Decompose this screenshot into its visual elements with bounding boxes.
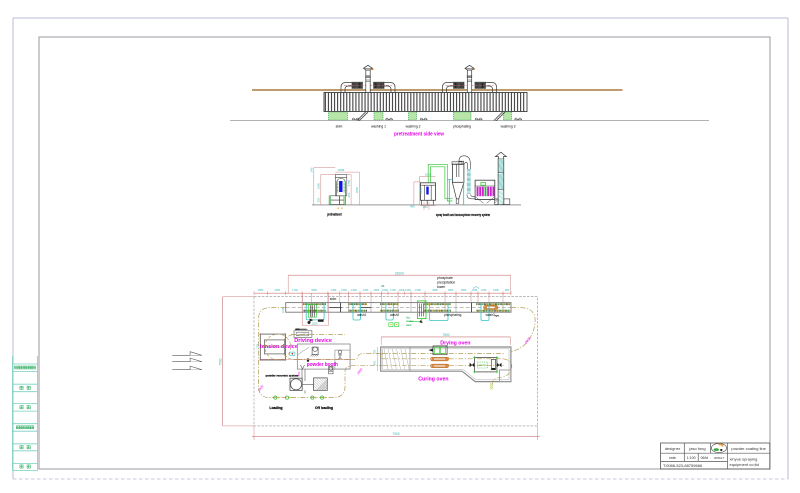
svg-text:005617: 005617 xyxy=(714,456,724,460)
svg-text:1000: 1000 xyxy=(415,288,421,292)
svg-text:washing 3: washing 3 xyxy=(501,125,516,129)
svg-text:1000: 1000 xyxy=(399,288,405,292)
svg-text:7500: 7500 xyxy=(442,333,449,337)
svg-text:450: 450 xyxy=(410,205,415,209)
svg-text:rate: rate xyxy=(669,455,677,460)
svg-text:phosphate: phosphate xyxy=(437,276,453,280)
svg-text:powder booth: powder booth xyxy=(307,362,339,368)
svg-text:2350: 2350 xyxy=(317,182,321,189)
svg-text:Off loading: Off loading xyxy=(315,406,333,410)
svg-text:06/td: 06/td xyxy=(701,456,709,460)
svg-text:1750: 1750 xyxy=(347,179,351,186)
svg-text:1700: 1700 xyxy=(390,288,396,292)
svg-text:1450: 1450 xyxy=(331,288,337,292)
svg-text:tower: tower xyxy=(437,285,446,289)
svg-text:phosphating: phosphating xyxy=(453,125,471,129)
svg-text:1500: 1500 xyxy=(257,384,265,392)
svg-text:1750: 1750 xyxy=(481,288,487,292)
svg-text:jaso fong: jaso fong xyxy=(688,446,705,451)
svg-text:Drying oven: Drying oven xyxy=(440,341,471,347)
svg-text:AB: AB xyxy=(381,284,385,288)
svg-text:7000: 7000 xyxy=(392,432,399,436)
svg-text:precipitation: precipitation xyxy=(437,280,455,284)
svg-text:tension device: tension device xyxy=(260,344,298,350)
svg-text:Curing oven: Curing oven xyxy=(418,377,449,383)
svg-text:450: 450 xyxy=(373,360,377,365)
svg-text:tank: tank xyxy=(406,323,412,327)
svg-text:Loading: Loading xyxy=(269,406,282,410)
svg-text:1250: 1250 xyxy=(472,288,478,292)
svg-text:1200: 1200 xyxy=(312,322,318,326)
svg-text:1500: 1500 xyxy=(356,367,364,375)
svg-text:1500: 1500 xyxy=(448,288,454,292)
svg-text:wash2: wash2 xyxy=(390,313,399,317)
svg-text:1500: 1500 xyxy=(258,288,264,292)
svg-text:1443: 1443 xyxy=(363,288,369,292)
svg-text:phosphating: phosphating xyxy=(444,313,462,317)
svg-text:equipment co;ltd: equipment co;ltd xyxy=(730,462,759,467)
svg-text:washing 2: washing 2 xyxy=(406,125,421,129)
svg-text:washing 1: washing 1 xyxy=(371,125,386,129)
svg-text:T:0086-523-88759666: T:0086-523-88759666 xyxy=(663,463,703,468)
svg-text:wash3: wash3 xyxy=(486,313,495,317)
svg-text:spray booth and monocyclone re: spray booth and monocyclone recovery sys… xyxy=(436,213,490,217)
svg-text:pretreatment side view: pretreatment side view xyxy=(394,131,445,137)
svg-text:1000: 1000 xyxy=(373,288,379,292)
svg-text:powder coating line: powder coating line xyxy=(731,446,766,451)
svg-text:2200: 2200 xyxy=(493,288,499,292)
svg-text:350: 350 xyxy=(317,197,321,202)
svg-text:1700: 1700 xyxy=(292,288,298,292)
svg-text:240: 240 xyxy=(310,167,314,172)
svg-text:1000: 1000 xyxy=(351,288,357,292)
svg-text:26200: 26200 xyxy=(395,272,404,276)
svg-text:1000: 1000 xyxy=(405,288,411,292)
svg-text:600: 600 xyxy=(347,192,351,197)
svg-text:wash1: wash1 xyxy=(357,313,366,317)
svg-text:1:100: 1:100 xyxy=(687,456,696,460)
svg-text:1500: 1500 xyxy=(461,288,467,292)
svg-text:3000: 3000 xyxy=(489,383,493,390)
svg-text:986: 986 xyxy=(505,288,510,292)
svg-text:7500: 7500 xyxy=(219,358,223,365)
svg-text:skim: skim xyxy=(336,125,343,129)
svg-text:designer: designer xyxy=(665,446,681,451)
svg-text:powder recovery system: powder recovery system xyxy=(266,373,299,377)
svg-text:1000: 1000 xyxy=(341,288,347,292)
svg-text:750: 750 xyxy=(256,343,260,348)
svg-text:pretreatment: pretreatment xyxy=(327,213,342,217)
svg-text:skim: skim xyxy=(330,297,337,301)
svg-text:3250: 3250 xyxy=(355,186,359,193)
svg-text:1008: 1008 xyxy=(338,168,345,172)
svg-text:3000: 3000 xyxy=(311,288,317,292)
svg-text:750: 750 xyxy=(373,349,377,354)
svg-text:1000: 1000 xyxy=(382,288,388,292)
svg-text:xinyue spraying: xinyue spraying xyxy=(730,456,758,461)
svg-text:2250: 2250 xyxy=(274,288,280,292)
svg-text:Driving device: Driving device xyxy=(294,338,332,344)
svg-text:2350: 2350 xyxy=(419,187,423,194)
